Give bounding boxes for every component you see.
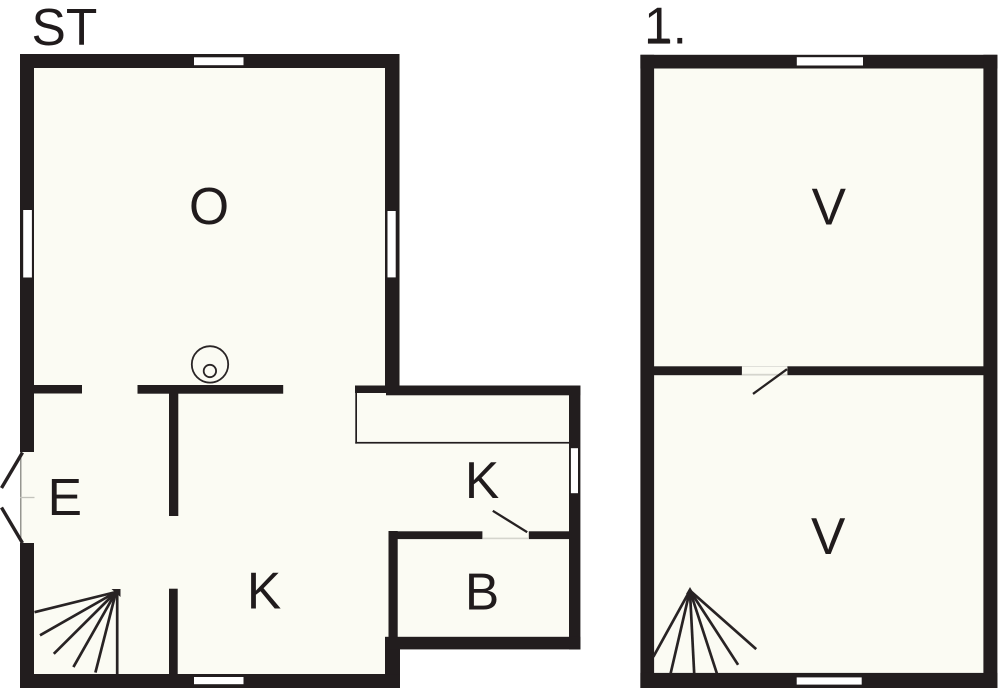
svg-text:O: O xyxy=(189,177,229,235)
svg-text:V: V xyxy=(811,507,846,565)
svg-text:V: V xyxy=(812,177,847,235)
svg-text:E: E xyxy=(48,468,82,526)
svg-text:1.: 1. xyxy=(644,0,687,55)
svg-text:K: K xyxy=(247,561,281,619)
svg-text:ST: ST xyxy=(32,0,98,56)
svg-text:K: K xyxy=(465,451,499,509)
svg-text:B: B xyxy=(465,562,499,620)
